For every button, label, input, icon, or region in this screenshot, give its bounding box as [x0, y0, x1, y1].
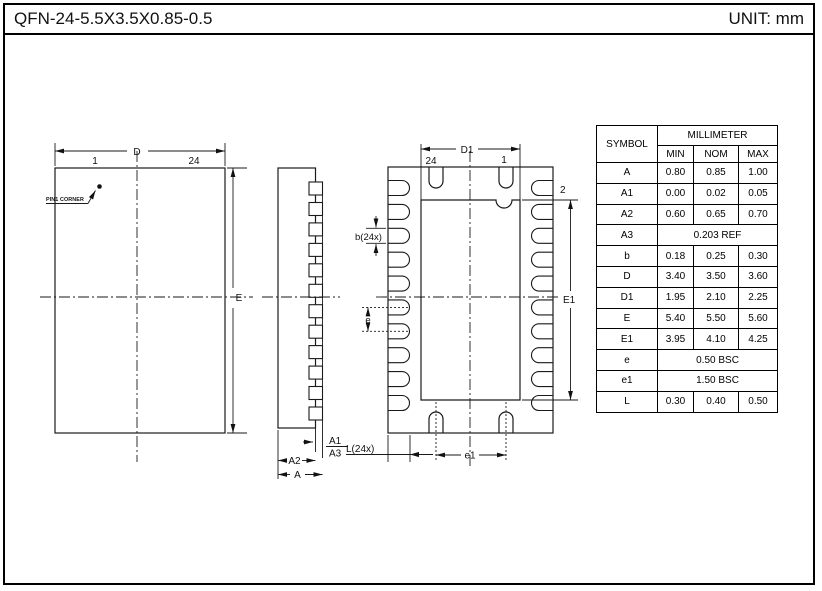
bottom-body-outline: [388, 167, 553, 433]
value-cell: 0.25: [694, 246, 739, 267]
value-cell: 0.60: [658, 204, 694, 225]
package-body-outline: [55, 168, 225, 433]
dim-d-label: D: [133, 147, 140, 158]
value-cell: A3: [597, 225, 658, 246]
dim-e-pitch-label: e: [365, 315, 370, 326]
value-cell: 4.25: [739, 329, 778, 350]
table-row: D3.403.503.60: [597, 266, 778, 287]
value-cell: 3.60: [739, 266, 778, 287]
value-cell: 0.80: [658, 163, 694, 184]
value-cell: A1: [597, 183, 658, 204]
dim-e1-label: E1: [563, 295, 576, 306]
value-cell: 0.02: [694, 183, 739, 204]
table-row: e11.50 BSC: [597, 370, 778, 391]
pin24-number-label: 24: [188, 156, 200, 167]
value-cell: 5.60: [739, 308, 778, 329]
value-cell: 4.10: [694, 329, 739, 350]
table-row: D11.952.102.25: [597, 287, 778, 308]
pin2-number-label: 2: [560, 185, 566, 196]
nom-header: NOM: [694, 146, 739, 163]
pin1-corner-label: PIN1 CORNER: [46, 197, 84, 203]
value-cell: 2.10: [694, 287, 739, 308]
exposed-pad-outline: [421, 200, 520, 400]
value-cell: A2: [597, 204, 658, 225]
table-row: A20.600.650.70: [597, 204, 778, 225]
value-cell: 0.05: [739, 183, 778, 204]
table-row: A30.203 REF: [597, 225, 778, 246]
value-cell: A: [597, 163, 658, 184]
value-cell: D1: [597, 287, 658, 308]
value-cell: 0.18: [658, 246, 694, 267]
millimeter-header: MILLIMETER: [658, 126, 778, 146]
table-row: E13.954.104.25: [597, 329, 778, 350]
symbol-header: SYMBOL: [597, 126, 658, 163]
top-view: D 1 24 E PIN1 CORNER: [40, 143, 253, 462]
dim-a-label: A: [294, 470, 301, 481]
value-cell: D: [597, 266, 658, 287]
value-cell: 0.00: [658, 183, 694, 204]
value-cell: e: [597, 350, 658, 371]
table-row: b0.180.250.30: [597, 246, 778, 267]
table-row: L0.300.400.50: [597, 391, 778, 412]
value-cell: 0.65: [694, 204, 739, 225]
left-pads: [388, 181, 410, 411]
value-cell: 2.25: [739, 287, 778, 308]
pin1-number-label: 1: [501, 155, 507, 166]
dim-l-label: L(24x): [346, 444, 374, 455]
dim-d1-label: D1: [461, 145, 474, 156]
value-cell: E: [597, 308, 658, 329]
dim-e1-pitch-label: e1: [464, 451, 476, 462]
value-cell: 1.00: [739, 163, 778, 184]
value-cell: e1: [597, 370, 658, 391]
pin1-corner-dot: [97, 184, 102, 189]
value-cell: 0.30: [658, 391, 694, 412]
dimension-table-body: A0.800.851.00A10.000.020.05A20.600.650.7…: [597, 163, 778, 413]
value-cell: 1.95: [658, 287, 694, 308]
value-cell: 0.40: [694, 391, 739, 412]
table-row: A10.000.020.05: [597, 183, 778, 204]
table-row: A0.800.851.00: [597, 163, 778, 184]
value-cell: L: [597, 391, 658, 412]
top-slot-pin24: [429, 167, 443, 188]
span-value-cell: 0.50 BSC: [658, 350, 778, 371]
pin24-number-label: 24: [425, 156, 437, 167]
value-cell: 0.30: [739, 246, 778, 267]
span-value-cell: 1.50 BSC: [658, 370, 778, 391]
value-cell: 0.70: [739, 204, 778, 225]
dimension-table: SYMBOL MILLIMETER MIN NOM MAX A0.800.851…: [596, 125, 778, 413]
value-cell: 0.85: [694, 163, 739, 184]
value-cell: 3.50: [694, 266, 739, 287]
dim-b-label: b(24x): [355, 232, 382, 243]
dim-e-label: E: [236, 293, 243, 304]
side-view: A1 A3 A2 A: [262, 168, 348, 481]
pin1-number-label: 1: [92, 156, 98, 167]
dim-a1-label: A1: [329, 436, 342, 447]
bottom-view: D1 24 1 2 E1 b(24x) e e1 L(24x): [346, 144, 578, 467]
value-cell: 5.50: [694, 308, 739, 329]
value-cell: 3.95: [658, 329, 694, 350]
dim-a2-label: A2: [288, 456, 301, 467]
min-header: MIN: [658, 146, 694, 163]
value-cell: 0.50: [739, 391, 778, 412]
top-slot-pin1: [499, 167, 513, 188]
drawing-sheet: QFN-24-5.5X3.5X0.85-0.5 UNIT: mm: [0, 0, 822, 591]
value-cell: 3.40: [658, 266, 694, 287]
span-value-cell: 0.203 REF: [658, 225, 778, 246]
value-cell: E1: [597, 329, 658, 350]
value-cell: 5.40: [658, 308, 694, 329]
value-cell: b: [597, 246, 658, 267]
dim-a3-label: A3: [329, 449, 342, 460]
table-row: E5.405.505.60: [597, 308, 778, 329]
right-pads: [532, 181, 554, 411]
table-row: e0.50 BSC: [597, 350, 778, 371]
max-header: MAX: [739, 146, 778, 163]
